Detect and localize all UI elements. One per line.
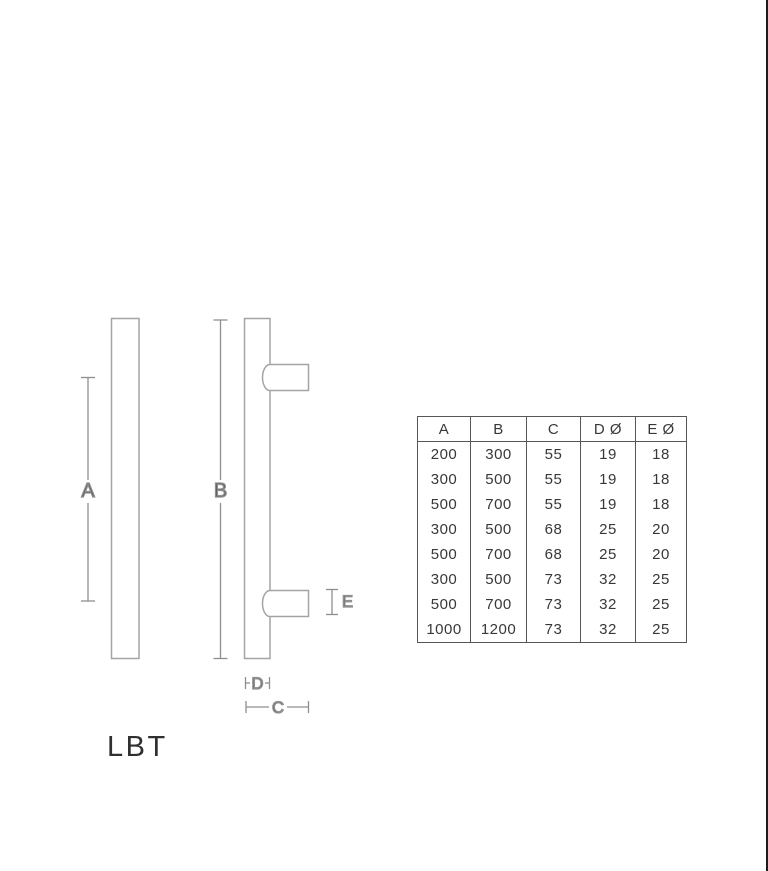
dim-d-label: D bbox=[252, 675, 264, 693]
spec-cell: 500 bbox=[471, 567, 527, 592]
spec-cell: 25 bbox=[581, 542, 636, 567]
spec-cell: 700 bbox=[471, 492, 527, 517]
front-bar bbox=[112, 319, 140, 659]
spec-cell: 73 bbox=[527, 567, 581, 592]
spec-cell: 32 bbox=[581, 617, 636, 643]
spec-cell: 25 bbox=[581, 517, 636, 542]
dimension-a: A bbox=[81, 378, 95, 602]
spec-row: 300500682520 bbox=[418, 517, 687, 542]
spec-cell: 18 bbox=[636, 467, 687, 492]
spec-table: ABCD ØE Ø 200300551918300500551918500700… bbox=[417, 416, 687, 643]
dimension-e: E bbox=[326, 590, 353, 615]
spec-header-cell: E Ø bbox=[636, 417, 687, 442]
spec-cell: 200 bbox=[418, 442, 471, 468]
spec-header-cell: B bbox=[471, 417, 527, 442]
spec-cell: 500 bbox=[418, 492, 471, 517]
spec-cell: 73 bbox=[527, 592, 581, 617]
spec-cell: 500 bbox=[418, 542, 471, 567]
dim-a-label: A bbox=[81, 480, 95, 502]
dim-c-label: C bbox=[272, 699, 284, 717]
spec-cell: 73 bbox=[527, 617, 581, 643]
spec-cell: 25 bbox=[636, 592, 687, 617]
spec-row: 200300551918 bbox=[418, 442, 687, 468]
spec-table-container: ABCD ØE Ø 200300551918300500551918500700… bbox=[417, 416, 687, 643]
spec-header-cell: C bbox=[527, 417, 581, 442]
spec-cell: 1000 bbox=[418, 617, 471, 643]
dim-b-label: B bbox=[214, 480, 227, 502]
spec-cell: 19 bbox=[581, 467, 636, 492]
spec-cell: 32 bbox=[581, 592, 636, 617]
spec-cell: 32 bbox=[581, 567, 636, 592]
spec-cell: 500 bbox=[471, 517, 527, 542]
product-name: LBT bbox=[107, 731, 168, 764]
spec-header-row: ABCD ØE Ø bbox=[418, 417, 687, 442]
spec-row: 500700733225 bbox=[418, 592, 687, 617]
spec-cell: 300 bbox=[418, 517, 471, 542]
spec-row: 500700682520 bbox=[418, 542, 687, 567]
spec-cell: 19 bbox=[581, 492, 636, 517]
spec-row: 500700551918 bbox=[418, 492, 687, 517]
spec-cell: 1200 bbox=[471, 617, 527, 643]
spec-cell: 300 bbox=[471, 442, 527, 468]
spec-cell: 20 bbox=[636, 517, 687, 542]
dimension-d: D bbox=[246, 675, 270, 693]
spec-cell: 300 bbox=[418, 567, 471, 592]
spec-cell: 55 bbox=[527, 492, 581, 517]
spec-cell: 25 bbox=[636, 567, 687, 592]
spec-cell: 700 bbox=[471, 592, 527, 617]
spec-table-body: 2003005519183005005519185007005519183005… bbox=[418, 442, 687, 643]
catalog-page: A B E D bbox=[0, 0, 768, 871]
bottom-mounting-post bbox=[263, 591, 309, 617]
spec-row: 10001200733225 bbox=[418, 617, 687, 643]
spec-cell: 500 bbox=[471, 467, 527, 492]
spec-cell: 20 bbox=[636, 542, 687, 567]
spec-cell: 19 bbox=[581, 442, 636, 468]
spec-cell: 18 bbox=[636, 492, 687, 517]
spec-header-cell: A bbox=[418, 417, 471, 442]
side-view bbox=[245, 319, 309, 659]
spec-cell: 25 bbox=[636, 617, 687, 643]
spec-cell: 68 bbox=[527, 542, 581, 567]
dimension-c: C bbox=[246, 699, 309, 717]
front-view bbox=[112, 319, 140, 659]
top-mounting-post bbox=[263, 365, 309, 391]
spec-cell: 55 bbox=[527, 442, 581, 468]
spec-cell: 700 bbox=[471, 542, 527, 567]
spec-cell: 55 bbox=[527, 467, 581, 492]
spec-cell: 500 bbox=[418, 592, 471, 617]
spec-cell: 300 bbox=[418, 467, 471, 492]
dim-e-label: E bbox=[342, 593, 353, 611]
spec-cell: 18 bbox=[636, 442, 687, 468]
spec-row: 300500551918 bbox=[418, 467, 687, 492]
spec-header-cell: D Ø bbox=[581, 417, 636, 442]
spec-row: 300500733225 bbox=[418, 567, 687, 592]
spec-cell: 68 bbox=[527, 517, 581, 542]
dimension-b: B bbox=[214, 320, 228, 659]
